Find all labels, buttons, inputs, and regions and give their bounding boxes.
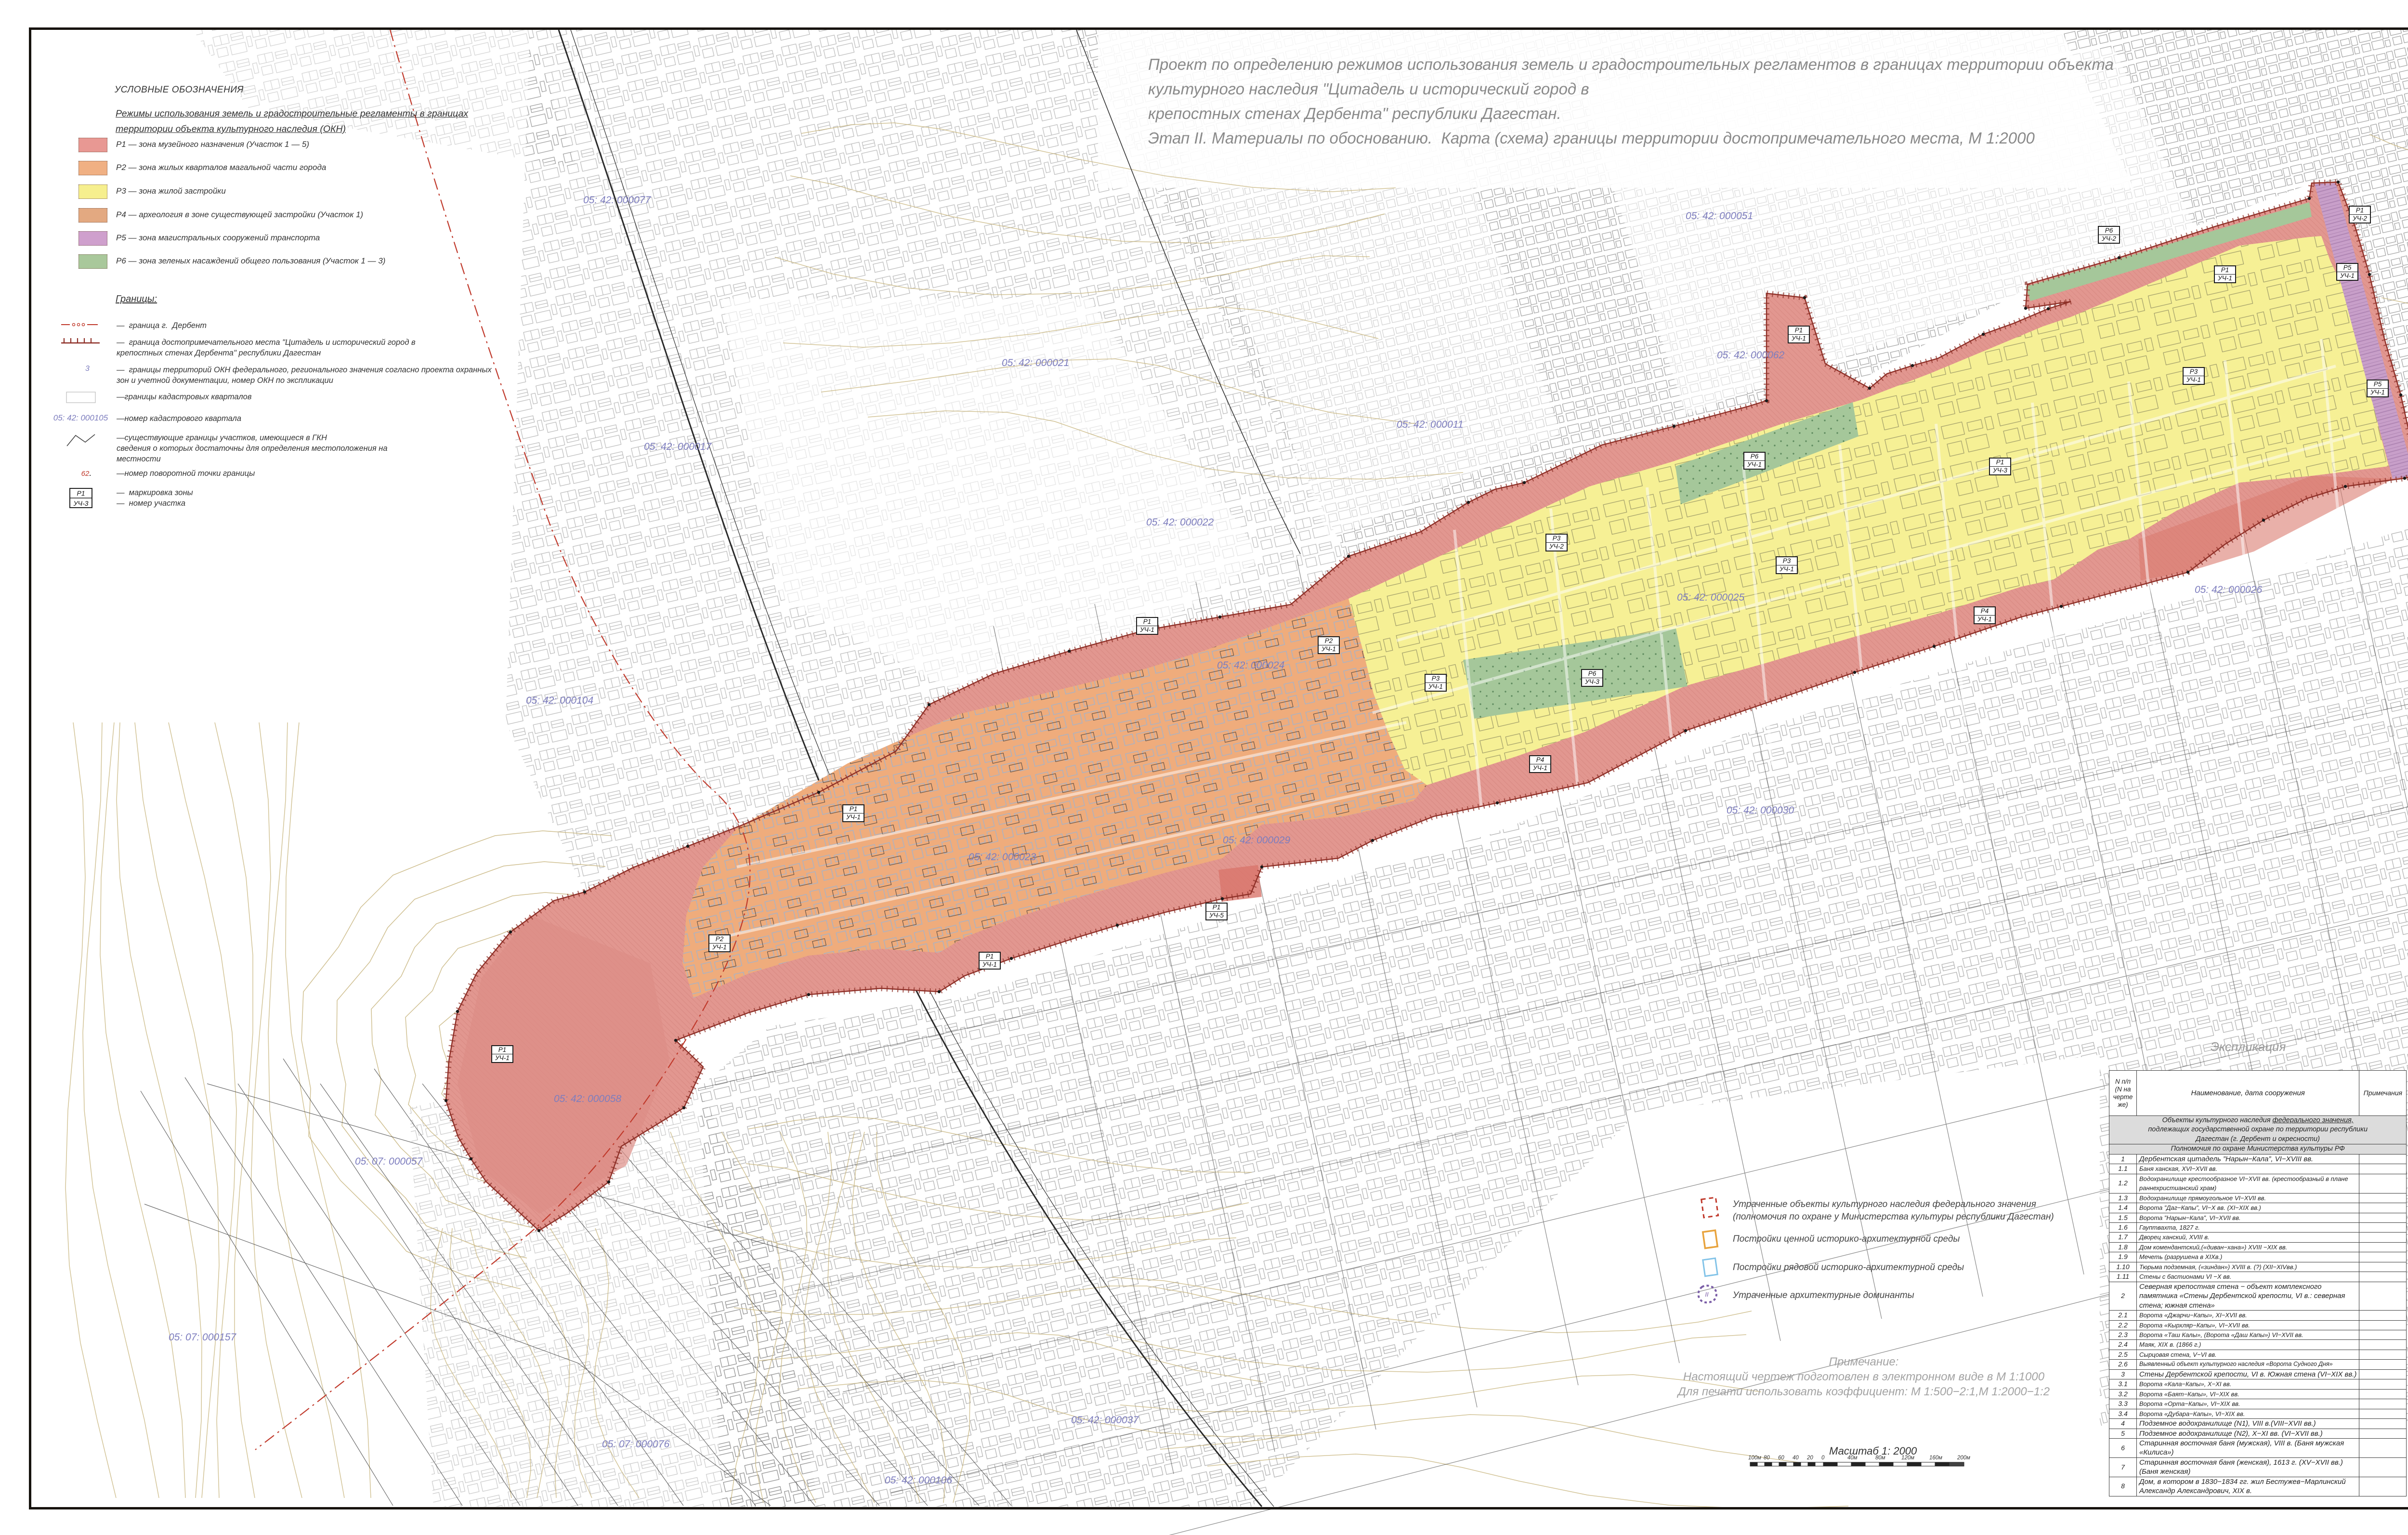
svg-text:160м: 160м [1929,1455,1942,1461]
svg-text:0: 0 [1821,1455,1825,1461]
svg-text:80м: 80м [1875,1455,1885,1461]
svg-text:20: 20 [1806,1455,1813,1461]
svg-text:200м: 200м [1957,1455,1970,1461]
svg-text:40: 40 [1793,1455,1799,1461]
svg-text:120м: 120м [1901,1455,1914,1461]
svg-text:II: II [1705,1291,1709,1298]
svg-text:80: 80 [1764,1455,1770,1461]
svg-text:60: 60 [1778,1455,1784,1461]
svg-text:100м: 100м [1748,1455,1761,1461]
svg-text:УЧ-3: УЧ-3 [73,499,88,507]
svg-text:Р1: Р1 [77,489,85,497]
svg-text:40м: 40м [1847,1455,1858,1461]
